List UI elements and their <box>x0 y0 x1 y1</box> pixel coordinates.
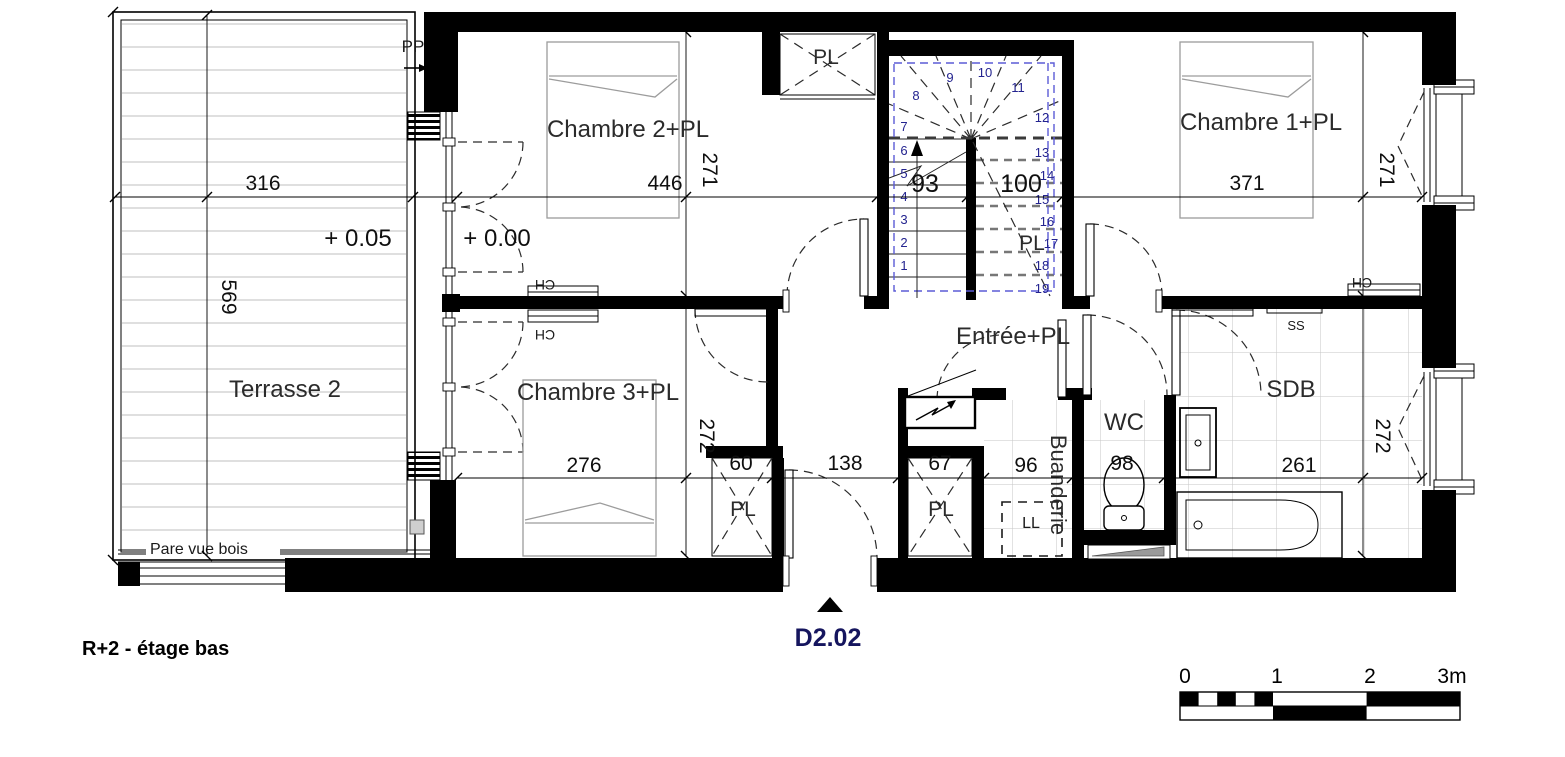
door-jamb <box>1156 290 1162 312</box>
title-block: D2.02 R+2 - étage bas <box>82 597 861 660</box>
dim-ch1-h: 271 <box>1375 152 1398 187</box>
terrace-decking <box>122 21 406 551</box>
wall-wc-sdb-divider <box>1164 395 1176 530</box>
level-terrasse: + 0.05 <box>324 225 391 252</box>
wall-stair-right <box>1062 56 1074 300</box>
stair-step-7: 7 <box>900 119 907 134</box>
dim-ch2-w: 446 <box>647 172 682 195</box>
scale-0: 0 <box>1179 665 1191 688</box>
dim-ch3-w: 276 <box>566 454 601 477</box>
ch-label-chambre1: CH <box>1352 275 1372 291</box>
dim-ch3-h: 272 <box>695 418 718 453</box>
room-label-entree: Entrée+PL <box>956 323 1070 350</box>
stair-step-5: 5 <box>900 166 907 181</box>
closet-67-label: PL <box>928 498 954 521</box>
floor-plan-drawing: Pare vue bois Terrasse 2 + 0.05 <box>0 0 1565 757</box>
scale-3m: 3m <box>1437 665 1466 688</box>
wall-middle-b <box>1062 296 1090 309</box>
door-leaf-entry <box>785 470 793 558</box>
wall-top <box>424 12 1456 32</box>
stair-direction-arrow <box>911 140 923 156</box>
dim-ch2-h: 271 <box>698 152 721 187</box>
room-label-chambre3: Chambre 3+PL <box>517 379 679 406</box>
door-jamb <box>871 556 877 586</box>
roller-blind-box-bottom <box>408 452 440 480</box>
stair-step-13: 13 <box>1035 145 1049 160</box>
door-leaf-wc <box>1083 315 1091 395</box>
stair-step-3: 3 <box>900 212 907 227</box>
stair-step-2: 2 <box>900 235 907 250</box>
dim-stair-left: 93 <box>911 170 939 198</box>
wall-stair-spine <box>966 138 976 300</box>
stair-step-11: 11 <box>1011 80 1025 95</box>
room-label-sdb: SDB <box>1266 376 1315 403</box>
door-leaf-chambre1 <box>1086 224 1094 296</box>
door-leaf-chambre2 <box>860 219 868 296</box>
facade-post <box>410 520 424 534</box>
stair-step-6: 6 <box>900 143 907 158</box>
stair-step-9: 9 <box>946 70 953 85</box>
dim-wc: 98 <box>1110 452 1133 475</box>
wall-wc-bottom <box>1084 530 1176 545</box>
unit-label: D2.02 <box>795 624 862 652</box>
dim-ch1-w: 371 <box>1229 172 1264 195</box>
room-label-wc: WC <box>1104 409 1144 436</box>
door-swing-chambre3 <box>695 309 768 382</box>
wall-stair-left <box>877 32 889 300</box>
roller-blind-box-top <box>408 112 440 140</box>
window-opening-dashes <box>1398 92 1424 200</box>
stair-step-16: 16 <box>1040 214 1054 229</box>
closet-top-pl-label: PL <box>813 46 839 69</box>
dim-sdb-h: 272 <box>1371 418 1394 453</box>
stair-step-4: 4 <box>900 189 907 204</box>
terrace: Pare vue bois Terrasse 2 + 0.05 <box>113 12 456 586</box>
level-etage: + 0.00 <box>463 225 530 252</box>
room-label-chambre1: Chambre 1+PL <box>1180 109 1342 136</box>
scale-2: 2 <box>1364 665 1376 688</box>
door-jamb <box>783 556 789 586</box>
door-leaf-sdb <box>1172 310 1180 395</box>
wall-middle-c <box>1160 296 1422 309</box>
stair-step-10: 10 <box>978 65 992 80</box>
wall-left-lower <box>430 480 456 558</box>
stair-step-14: 14 <box>1040 168 1054 183</box>
wc-duct <box>1088 545 1170 559</box>
dim-pl67: 67 <box>928 452 951 475</box>
scale-bar: 0 1 2 3m <box>1179 665 1466 720</box>
dim-stair-right: 100 <box>1000 170 1042 198</box>
floor-label: R+2 - étage bas <box>82 638 229 660</box>
wall-bottom-right <box>877 558 1456 592</box>
wall-right-middle <box>1422 205 1456 368</box>
pare-vue-label: Pare vue bois <box>150 541 248 558</box>
entry-arrow <box>817 597 843 612</box>
room-label-terrasse: Terrasse 2 <box>229 376 341 403</box>
wall-chambre3-right <box>766 309 778 450</box>
wall-left-upper <box>424 12 458 112</box>
dim-buanderie: 96 <box>1014 454 1037 477</box>
dim-hall: 138 <box>827 452 862 475</box>
wall-closet-top-left <box>762 32 780 95</box>
scale-bar-graphic <box>1180 692 1460 720</box>
door-jamb <box>783 290 789 312</box>
ch-label-chambre3: CH <box>535 327 555 343</box>
left-glazed-facade <box>408 112 523 534</box>
closet-top-pl: PL <box>780 34 875 99</box>
dim-sdb-w: 261 <box>1281 454 1316 477</box>
closet-under-stairs-label: PL <box>1019 232 1045 255</box>
wall-middle-stub <box>864 296 889 309</box>
stair-step-19: 19 <box>1035 281 1049 296</box>
wall-buanderie-wc-divider <box>1072 388 1084 558</box>
wall-facade-stub <box>442 294 460 312</box>
wall-closet67-right <box>972 458 984 558</box>
ss-label: SS <box>1287 318 1305 333</box>
stair-step-12: 12 <box>1035 110 1049 125</box>
stair-step-17: 17 <box>1044 236 1058 251</box>
ch-label-chambre2: CH <box>535 277 555 293</box>
pp-label: PP <box>402 37 425 56</box>
dim-terrasse-w: 316 <box>245 172 280 195</box>
wall-stair-top <box>877 40 1074 56</box>
scale-1: 1 <box>1271 665 1283 688</box>
floor-plan-page: Pare vue bois Terrasse 2 + 0.05 <box>0 0 1565 757</box>
stair-step-1: 1 <box>900 258 907 273</box>
stair-step-8: 8 <box>912 88 919 103</box>
wall-bottom-left <box>285 558 783 592</box>
wall-closet60-right <box>772 458 784 558</box>
room-label-buanderie: Buanderie <box>1046 435 1071 535</box>
ll-label: LL <box>1022 515 1040 532</box>
room-label-chambre2: Chambre 2+PL <box>547 116 709 143</box>
closet-60-label: PL <box>730 498 756 521</box>
dim-terrasse-h: 569 <box>217 279 240 314</box>
stair-step-18: 18 <box>1035 258 1049 273</box>
wall-right-upper <box>1422 32 1456 85</box>
window-chambre1 <box>1398 80 1474 210</box>
wall-buanderie-top-left <box>972 388 1006 400</box>
dim-pl60: 60 <box>729 452 752 475</box>
